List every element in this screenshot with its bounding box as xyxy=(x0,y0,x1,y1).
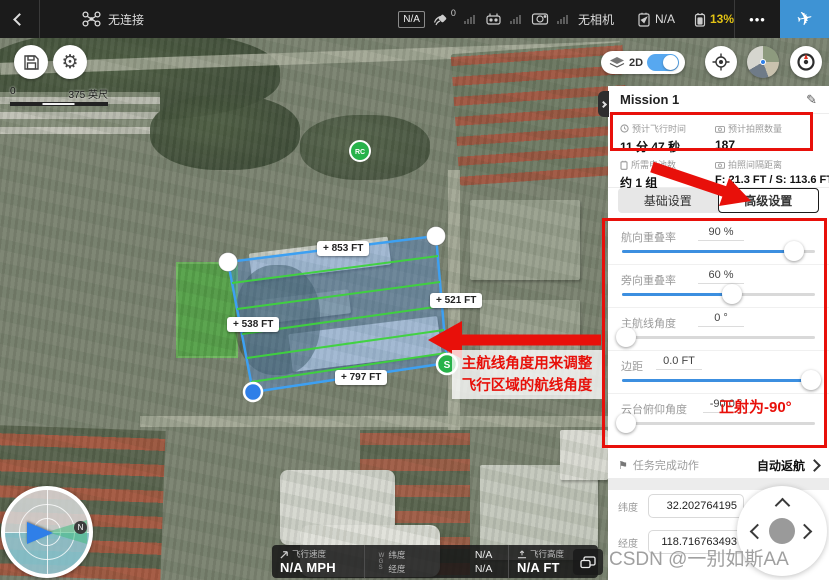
setting-label: 旁向重叠率 xyxy=(621,272,676,288)
telemetry-lat-label: 纬度 xyxy=(388,549,405,561)
latitude-row: 纬度 32.202764195 xyxy=(608,492,758,520)
nudge-center-knob[interactable] xyxy=(769,518,795,544)
telemetry-lat-value: N/A xyxy=(475,549,493,561)
finish-action-value: 自动返航 xyxy=(757,457,805,474)
flag-icon: ⚑ xyxy=(618,459,628,472)
satellite-count: 0 xyxy=(451,8,456,18)
edit-mission-name-button[interactable]: ✎ xyxy=(806,92,817,108)
scale-bar-graphic xyxy=(10,102,108,106)
wgs-label: WGS xyxy=(371,545,385,578)
aircraft-battery-icon xyxy=(636,12,652,27)
stat-photo-count: 预计拍照数量 187 xyxy=(715,122,815,152)
slider-handle[interactable] xyxy=(722,284,742,304)
latitude-label: 纬度 xyxy=(618,499,642,514)
locate-me-button[interactable] xyxy=(705,46,737,78)
more-options-button[interactable]: ••• xyxy=(734,0,780,38)
connection-status: 无连接 xyxy=(108,11,144,28)
layers-icon xyxy=(609,56,625,69)
altitude-label: 飞行高度 xyxy=(530,548,564,560)
nudge-left-button[interactable] xyxy=(750,524,766,540)
speed-icon xyxy=(280,550,289,559)
route-angle-slider[interactable] xyxy=(622,336,815,339)
rc-signal-bars xyxy=(510,15,521,24)
rc-battery-value: 13% xyxy=(710,12,734,26)
drone-icon xyxy=(82,11,101,27)
save-mission-button[interactable] xyxy=(14,45,48,79)
setting-value-field[interactable]: 0 ° xyxy=(698,312,744,327)
altitude-icon xyxy=(517,550,527,559)
aircraft-heading-arrow xyxy=(27,522,53,544)
satellite-icon xyxy=(433,12,450,27)
picture-in-picture-icon xyxy=(580,556,596,569)
stat-photo-interval: 拍照间隔距离 F: 21.3 FT / S: 113.6 FT xyxy=(715,158,827,186)
minimap-location-dot xyxy=(760,59,766,65)
setting-value-field[interactable]: -90.0 ° xyxy=(703,398,749,413)
aircraft-battery-value: N/A xyxy=(655,12,675,26)
camera-view-toggle-button[interactable] xyxy=(573,549,603,575)
gear-icon: ⚙ xyxy=(61,53,78,72)
top-status-bar: 无连接 N/A 0 xyxy=(0,0,829,38)
nudge-right-button[interactable] xyxy=(797,524,813,540)
scale-end-label: 375 英尺 xyxy=(69,86,108,101)
camera-transmission-icon xyxy=(531,12,549,26)
setting-value-field[interactable]: 0.0 FT xyxy=(656,355,702,370)
battery-icon xyxy=(620,160,628,170)
compass-north-badge: N xyxy=(74,521,87,534)
stat-flight-time: 预计飞行时间 11 分 47 秒 xyxy=(620,122,720,155)
setting-label: 边距 xyxy=(621,358,643,374)
map-mode-pill: 2D xyxy=(601,51,685,74)
map-scale-bar: 0 375 英尺 xyxy=(10,86,108,106)
telemetry-bar: 飞行速度 N/A MPH WGS 纬度N/A 经度N/A 飞行高度 N/A FT xyxy=(272,545,598,578)
camera-icon xyxy=(715,161,725,169)
setting-row-front-overlap: 航向重叠率 90 % xyxy=(608,222,829,265)
speed-value: N/A MPH xyxy=(280,560,356,575)
gimbal-pitch-slider[interactable] xyxy=(622,422,815,425)
compass-reset-button[interactable] xyxy=(790,46,822,78)
stat-batteries-needed: 所需电池数 约 1 组 xyxy=(620,158,720,191)
start-flight-button[interactable]: ✈ xyxy=(780,0,829,38)
telemetry-lon-value: N/A xyxy=(475,563,493,575)
setting-row-gimbal-pitch: 云台俯仰角度 -90.0 ° xyxy=(608,394,829,437)
mission-header: Mission 1 ✎ xyxy=(608,86,829,114)
setting-value-field[interactable]: 90 % xyxy=(698,226,744,241)
mission-title: Mission 1 xyxy=(620,92,679,107)
slider-handle[interactable] xyxy=(784,241,804,261)
camera-icon xyxy=(715,125,725,133)
mission-stats: 预计飞行时间 11 分 47 秒 预计拍照数量 187 所需电池数 约 1 组 xyxy=(608,114,829,188)
camera-status: 无相机 xyxy=(578,11,614,28)
finish-action-label: 任务完成动作 xyxy=(633,457,699,473)
slider-handle[interactable] xyxy=(616,327,636,347)
margin-slider[interactable] xyxy=(622,379,815,382)
setting-row-route-angle: 主航线角度 0 ° xyxy=(608,308,829,351)
app-root: S RC + 853 FT + 521 FT + 538 FT + 797 FT… xyxy=(0,0,829,580)
latitude-input[interactable]: 32.202764195 xyxy=(648,494,744,518)
scale-start-label: 0 xyxy=(10,86,16,101)
map-2d-toggle[interactable] xyxy=(647,54,679,71)
edge-distance-label-left: + 538 FT xyxy=(227,317,279,332)
clock-icon xyxy=(620,124,629,133)
setting-value-field[interactable]: 60 % xyxy=(698,269,744,284)
finish-action-row[interactable]: ⚑ 任务完成动作 自动返航 xyxy=(608,452,829,478)
setting-row-side-overlap: 旁向重叠率 60 % xyxy=(608,265,829,308)
longitude-label: 经度 xyxy=(618,535,642,550)
setting-label: 航向重叠率 xyxy=(621,229,676,245)
locate-icon xyxy=(712,53,730,71)
chevron-right-icon xyxy=(600,100,607,107)
chevron-right-icon xyxy=(808,459,821,472)
longitude-input[interactable]: 118.716763493 xyxy=(648,530,744,554)
setting-row-margin: 边距 0.0 FT xyxy=(608,351,829,394)
compass-icon xyxy=(796,52,816,72)
edge-distance-label-top: + 853 FT xyxy=(317,241,369,256)
tab-basic-settings[interactable]: 基础设置 xyxy=(618,188,718,213)
rc-battery-icon xyxy=(693,12,707,27)
settings-tabs: 基础设置 高级设置 xyxy=(618,188,819,213)
remote-controller-icon xyxy=(485,12,502,26)
gps-signal-bars xyxy=(464,15,475,24)
transmission-signal-bars xyxy=(557,15,568,24)
map-mode-label: 2D xyxy=(629,57,643,69)
back-button[interactable] xyxy=(0,0,40,38)
back-chevron-icon xyxy=(13,13,26,26)
tab-advanced-settings[interactable]: 高级设置 xyxy=(718,188,820,213)
edge-distance-label-bottom: + 797 FT xyxy=(335,370,387,385)
front-overlap-slider[interactable] xyxy=(622,250,815,253)
minimap-toggle-button[interactable] xyxy=(747,46,779,78)
side-overlap-slider[interactable] xyxy=(622,293,815,296)
gps-mode-badge: N/A xyxy=(398,11,425,28)
slider-handle[interactable] xyxy=(801,370,821,390)
nudge-up-button[interactable] xyxy=(775,498,791,514)
edge-distance-label-right: + 521 FT xyxy=(430,293,482,308)
slider-handle[interactable] xyxy=(616,413,636,433)
position-nudge-dpad xyxy=(737,486,827,576)
airplane-icon: ✈ xyxy=(794,6,814,32)
speed-label: 飞行速度 xyxy=(292,548,326,560)
mission-settings-button[interactable]: ⚙ xyxy=(53,45,87,79)
telemetry-lon-label: 经度 xyxy=(388,563,405,575)
toggle-knob xyxy=(663,55,678,70)
longitude-row: 经度 118.716763493 xyxy=(608,528,758,556)
save-icon xyxy=(23,54,40,71)
